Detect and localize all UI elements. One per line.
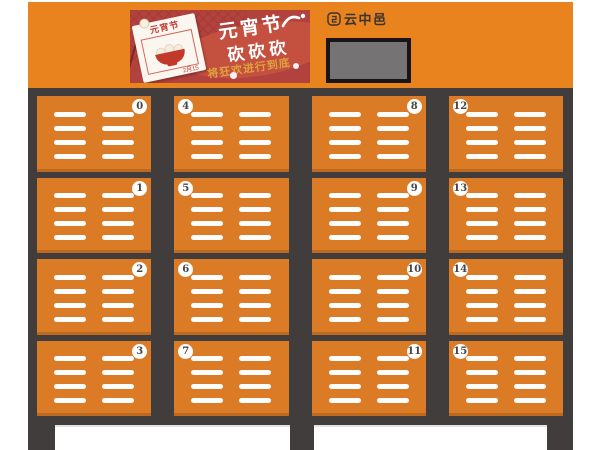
vent-slot	[239, 398, 271, 403]
vent-slot	[191, 221, 223, 226]
door-vents	[191, 275, 271, 322]
door-vents	[191, 193, 271, 240]
door-number-badge: 13	[453, 181, 468, 196]
brand-logo-icon	[327, 12, 341, 26]
door-number-badge: 14	[453, 262, 468, 277]
door-number-badge: 3	[132, 344, 147, 359]
vent-slot	[102, 289, 134, 294]
vent-slot	[466, 356, 498, 361]
vent-slot	[239, 126, 271, 131]
cabinet-leg-right	[547, 425, 573, 450]
door-number-badge: 9	[407, 181, 422, 196]
locker-door[interactable]: 5	[174, 178, 288, 254]
vent-slot	[239, 370, 271, 375]
vent-slot	[191, 193, 223, 198]
locker-door[interactable]: 7	[174, 341, 288, 417]
promo-poster: 元宵节 2月15 元宵节 砍砍砍 将狂欢进行到底	[130, 10, 310, 83]
vent-slot	[377, 317, 409, 322]
vent-slot	[54, 140, 86, 145]
vent-slot	[54, 221, 86, 226]
door-number-badge: 0	[132, 99, 147, 114]
vent-slot	[377, 154, 409, 159]
vent-slot	[466, 221, 498, 226]
vent-slot	[54, 303, 86, 308]
vent-slot	[54, 275, 86, 280]
vent-slot	[329, 112, 361, 117]
door-vents	[329, 193, 409, 240]
locker-door[interactable]: 13	[449, 178, 563, 254]
vent-slot	[102, 235, 134, 240]
vent-slot	[102, 384, 134, 389]
door-vents	[466, 112, 546, 159]
vent-slot	[514, 384, 546, 389]
vent-slot	[466, 289, 498, 294]
locker-door[interactable]: 8	[312, 96, 426, 172]
vent-slot	[54, 356, 86, 361]
vent-slot	[329, 207, 361, 212]
vent-slot	[54, 317, 86, 322]
vent-slot	[54, 193, 86, 198]
locker-door[interactable]: 0	[37, 96, 151, 172]
vent-slot	[239, 235, 271, 240]
vent-slot	[514, 356, 546, 361]
vent-slot	[239, 384, 271, 389]
vent-slot	[54, 207, 86, 212]
vent-slot	[377, 126, 409, 131]
door-vents	[54, 275, 134, 322]
locker-door[interactable]: 6	[174, 259, 288, 335]
vent-slot	[514, 317, 546, 322]
vent-slot	[377, 384, 409, 389]
vent-slot	[239, 193, 271, 198]
vent-slot	[514, 235, 546, 240]
vent-slot	[239, 154, 271, 159]
tangyuan-bowl-icon	[153, 41, 187, 69]
vent-slot	[102, 193, 134, 198]
vent-slot	[329, 193, 361, 198]
locker-door[interactable]: 11	[312, 341, 426, 417]
vent-slot	[514, 126, 546, 131]
vent-slot	[102, 112, 134, 117]
locker-door[interactable]: 14	[449, 259, 563, 335]
vent-slot	[466, 193, 498, 198]
vent-slot	[191, 126, 223, 131]
vent-slot	[191, 140, 223, 145]
vent-slot	[102, 398, 134, 403]
vent-slot	[466, 398, 498, 403]
poster-dot	[230, 72, 237, 79]
vent-slot	[191, 275, 223, 280]
vent-slot	[377, 398, 409, 403]
vent-slot	[514, 112, 546, 117]
vent-slot	[377, 303, 409, 308]
brush-swoosh-icon	[281, 11, 307, 31]
vent-slot	[466, 303, 498, 308]
vent-slot	[514, 370, 546, 375]
door-vents	[466, 275, 546, 322]
locker-cabinet: 元宵节 2月15 元宵节 砍砍砍 将狂欢进行到底	[28, 2, 573, 450]
vent-slot	[239, 275, 271, 280]
door-vents	[329, 275, 409, 322]
vent-slot	[102, 356, 134, 361]
vent-slot	[54, 384, 86, 389]
locker-door[interactable]: 9	[312, 178, 426, 254]
door-vents	[54, 193, 134, 240]
door-number-badge: 5	[178, 181, 193, 196]
vent-slot	[514, 289, 546, 294]
vent-slot	[329, 398, 361, 403]
vent-slot	[54, 398, 86, 403]
vent-slot	[329, 235, 361, 240]
vent-slot	[377, 370, 409, 375]
vent-slot	[514, 221, 546, 226]
door-vents	[54, 112, 134, 159]
locker-door[interactable]: 3	[37, 341, 151, 417]
vent-slot	[102, 317, 134, 322]
door-number-badge: 7	[178, 344, 193, 359]
vent-slot	[102, 154, 134, 159]
vent-slot	[329, 317, 361, 322]
vent-slot	[466, 384, 498, 389]
door-number-badge: 2	[132, 262, 147, 277]
vent-slot	[466, 235, 498, 240]
vent-slot	[102, 140, 134, 145]
vent-slot	[466, 140, 498, 145]
vent-slot	[466, 154, 498, 159]
vent-slot	[514, 398, 546, 403]
vent-slot	[54, 126, 86, 131]
vent-slot	[54, 112, 86, 117]
vent-slot	[191, 398, 223, 403]
vent-slot	[514, 154, 546, 159]
vent-slot	[239, 289, 271, 294]
vent-slot	[329, 289, 361, 294]
locker-door[interactable]: 12	[449, 96, 563, 172]
door-vents	[466, 193, 546, 240]
vent-slot	[191, 317, 223, 322]
vent-slot	[239, 140, 271, 145]
door-number-badge: 1	[132, 181, 147, 196]
vent-slot	[466, 275, 498, 280]
vent-slot	[466, 370, 498, 375]
vent-slot	[466, 207, 498, 212]
vent-slot	[102, 275, 134, 280]
vent-slot	[102, 303, 134, 308]
display-screen[interactable]	[326, 38, 411, 83]
vent-slot	[54, 289, 86, 294]
locker-door[interactable]: 1	[37, 178, 151, 254]
vent-slot	[466, 126, 498, 131]
vent-slot	[329, 303, 361, 308]
vent-slot	[239, 356, 271, 361]
door-vents	[329, 112, 409, 159]
vent-slot	[329, 275, 361, 280]
vent-slot	[329, 370, 361, 375]
vent-slot	[191, 384, 223, 389]
vent-slot	[54, 154, 86, 159]
vent-slot	[377, 207, 409, 212]
vent-slot	[466, 317, 498, 322]
vent-slot	[239, 221, 271, 226]
vent-slot	[239, 112, 271, 117]
cabinet-header: 元宵节 2月15 元宵节 砍砍砍 将狂欢进行到底	[28, 2, 573, 88]
vent-slot	[514, 193, 546, 198]
vent-slot	[239, 317, 271, 322]
vent-slot	[377, 235, 409, 240]
door-vents	[329, 356, 409, 403]
vent-slot	[329, 140, 361, 145]
vent-slot	[102, 126, 134, 131]
poster-dot	[293, 63, 299, 69]
vent-slot	[191, 235, 223, 240]
brand-name: 云中邑	[344, 9, 388, 28]
vent-slot	[191, 112, 223, 117]
vent-slot	[329, 384, 361, 389]
door-vents	[191, 112, 271, 159]
door-number-badge: 10	[407, 262, 422, 277]
door-number-badge: 12	[453, 99, 468, 114]
vent-slot	[377, 289, 409, 294]
vent-slot	[377, 193, 409, 198]
vent-slot	[514, 207, 546, 212]
vent-slot	[377, 140, 409, 145]
vent-slot	[191, 289, 223, 294]
vent-slot	[191, 154, 223, 159]
vent-slot	[191, 370, 223, 375]
vent-slot	[329, 126, 361, 131]
vent-slot	[377, 221, 409, 226]
vent-slot	[54, 370, 86, 375]
brand-logo: 云中邑	[327, 9, 388, 28]
vent-slot	[514, 140, 546, 145]
vent-slot	[191, 356, 223, 361]
vent-slot	[329, 356, 361, 361]
cabinet-leg-middle	[290, 425, 314, 450]
vent-slot	[191, 303, 223, 308]
vent-slot	[191, 207, 223, 212]
door-number-badge: 8	[407, 99, 422, 114]
vent-slot	[514, 275, 546, 280]
cabinet-leg-left	[28, 425, 55, 450]
locker-grid: 0 4 8 12 1 5 9 13 2 6 10 14 3 7	[28, 88, 573, 425]
vent-slot	[466, 112, 498, 117]
locker-door[interactable]: 4	[174, 96, 288, 172]
vent-slot	[377, 356, 409, 361]
vent-slot	[377, 112, 409, 117]
vent-slot	[239, 303, 271, 308]
door-number-badge: 11	[407, 344, 422, 359]
door-vents	[466, 356, 546, 403]
locker-door[interactable]: 15	[449, 341, 563, 417]
vent-slot	[239, 207, 271, 212]
door-number-badge: 15	[453, 344, 468, 359]
vent-slot	[102, 207, 134, 212]
vent-slot	[329, 154, 361, 159]
vent-slot	[514, 303, 546, 308]
vent-slot	[54, 235, 86, 240]
vent-slot	[102, 221, 134, 226]
calendar-graphic: 元宵节 2月15	[132, 13, 207, 83]
vent-slot	[329, 221, 361, 226]
vent-slot	[102, 370, 134, 375]
locker-door[interactable]: 10	[312, 259, 426, 335]
door-vents	[54, 356, 134, 403]
locker-door[interactable]: 2	[37, 259, 151, 335]
door-vents	[191, 356, 271, 403]
vent-slot	[377, 275, 409, 280]
